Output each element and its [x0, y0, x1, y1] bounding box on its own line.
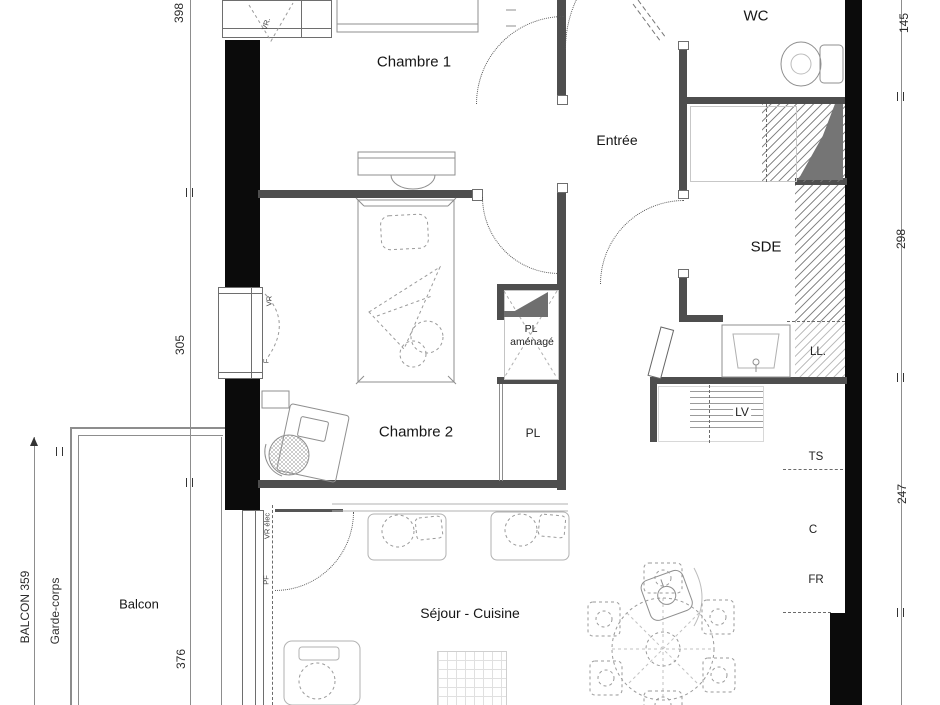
- room-label-wc: WC: [744, 8, 769, 25]
- room-label-chambre2: Chambre 2: [379, 424, 453, 441]
- tag-pf: PF: [262, 575, 271, 585]
- label-pl-amenage-2: aménagé: [510, 336, 554, 348]
- tag-f-left: F: [262, 359, 271, 364]
- dining-set: [588, 563, 735, 705]
- bed-chambre1: [337, 0, 478, 32]
- chair-chambre1: [391, 175, 435, 189]
- label-ts: TS: [809, 451, 824, 463]
- label-pl-amenage-1: PL: [525, 323, 538, 335]
- desk-chambre1: [358, 152, 455, 175]
- toilet-tank: [820, 45, 843, 83]
- sofas: [332, 504, 569, 560]
- sde-door-leaf: [648, 327, 673, 379]
- label-c: C: [809, 524, 817, 536]
- toilet-bowl: [781, 42, 821, 86]
- armchair: [284, 641, 360, 705]
- label-ll: LL.: [810, 346, 826, 358]
- room-label-balcon: Balcon: [119, 597, 159, 612]
- label-fr: FR: [808, 574, 823, 586]
- room-label-sejour-cuisine: Séjour - Cuisine: [420, 605, 520, 621]
- room-label-chambre1: Chambre 1: [377, 54, 451, 71]
- entrance-door-leaf: [638, 0, 666, 38]
- kitchen-sink: [639, 568, 695, 623]
- tag-vr-left: VR: [265, 296, 274, 306]
- room-label-entree: Entrée: [596, 132, 637, 148]
- tag-vr-elec: VR élec: [263, 513, 272, 539]
- room-label-sde: SDE: [751, 239, 782, 256]
- label-lv: LV: [733, 405, 751, 419]
- blanket: [369, 267, 440, 349]
- desk-chair: [269, 435, 309, 475]
- bed-chambre2: [358, 200, 454, 382]
- nightstand: [262, 391, 289, 408]
- label-pl: PL: [526, 426, 541, 440]
- floor-plan: 398 305 376 145 298 247 BALCON 359 Garde…: [0, 0, 940, 705]
- pillow: [380, 214, 429, 250]
